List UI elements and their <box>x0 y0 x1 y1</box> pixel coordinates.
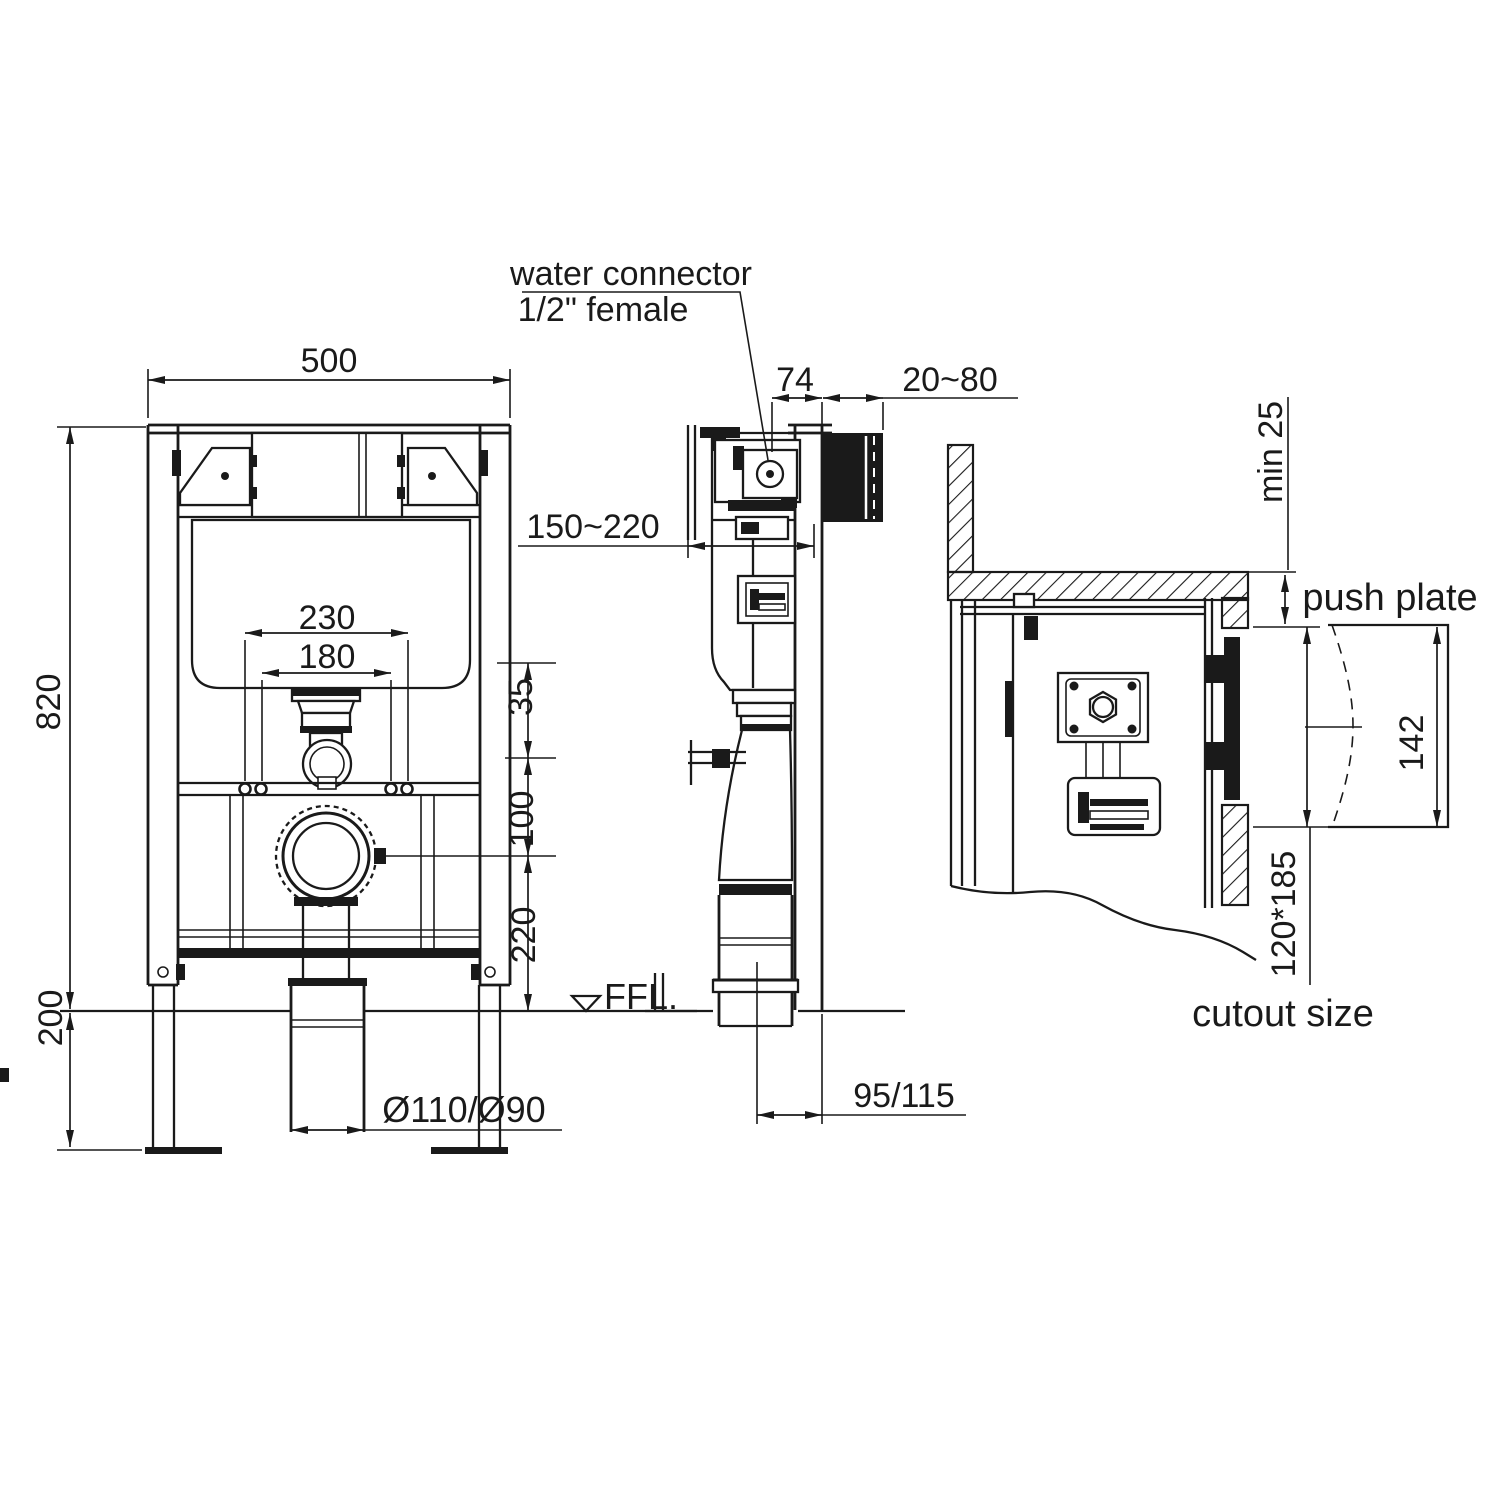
cutout-size-label: cutout size <box>1192 993 1374 1035</box>
left-foot-plate <box>145 1147 222 1154</box>
dim-leg-height: 200 <box>32 990 70 1047</box>
front-wall-above-cutout <box>1222 598 1248 628</box>
cistern-upper-tank <box>252 433 402 517</box>
side-drain-pipe <box>719 895 792 1026</box>
dim-drain-pipe-diameter: Ø110/Ø90 <box>382 1089 545 1130</box>
edge-artifact <box>0 1068 9 1082</box>
callout-water-connector-line2: 1/2" female <box>518 291 689 329</box>
left-corner-brace <box>180 448 250 505</box>
side-view <box>645 425 905 1026</box>
dim-flush-depth-range: 150~220 <box>526 508 659 546</box>
ffl-level-icon <box>572 996 600 1011</box>
dim-bracket-outer: 230 <box>299 599 356 637</box>
wall-section <box>948 445 973 572</box>
section-view <box>948 445 1296 960</box>
dim-cistern-gap: 35 <box>502 678 540 716</box>
technical-drawing-page: 500 820 200 230 180 35 100 220 FFL. Ø110… <box>0 0 1500 1500</box>
dim-bracket-inner: 180 <box>299 638 356 676</box>
right-foot-plate <box>431 1147 508 1154</box>
dim-drain-center-offset: 95/115 <box>853 1077 954 1115</box>
slab-section <box>948 572 1248 600</box>
callout-water-connector-line1: water connector <box>509 255 752 293</box>
dim-overall-height: 820 <box>30 674 68 731</box>
dim-flush-to-drain: 100 <box>503 791 541 848</box>
dim-overall-width: 500 <box>301 342 358 380</box>
dim-wall-finish-range: 20~80 <box>902 361 998 399</box>
push-plate-label: push plate <box>1302 577 1477 619</box>
dim-drain-to-floor: 220 <box>505 907 543 964</box>
toilet-frame-installation-drawing: 500 820 200 230 180 35 100 220 FFL. Ø110… <box>0 0 1500 1500</box>
bottom-cross-bar <box>178 948 480 958</box>
section-break-line <box>951 886 1256 960</box>
push-plate-section <box>1224 637 1240 800</box>
dim-cutout-dimensions: 120*185 <box>1265 851 1303 978</box>
right-corner-brace <box>408 448 477 505</box>
dim-push-plate-height: 142 <box>1393 715 1431 772</box>
dim-min-cover: min 25 <box>1252 401 1290 503</box>
front-wall-below-cutout <box>1222 805 1248 905</box>
dim-connector-offset: 74 <box>776 361 814 399</box>
drain-pipe <box>291 986 364 1132</box>
